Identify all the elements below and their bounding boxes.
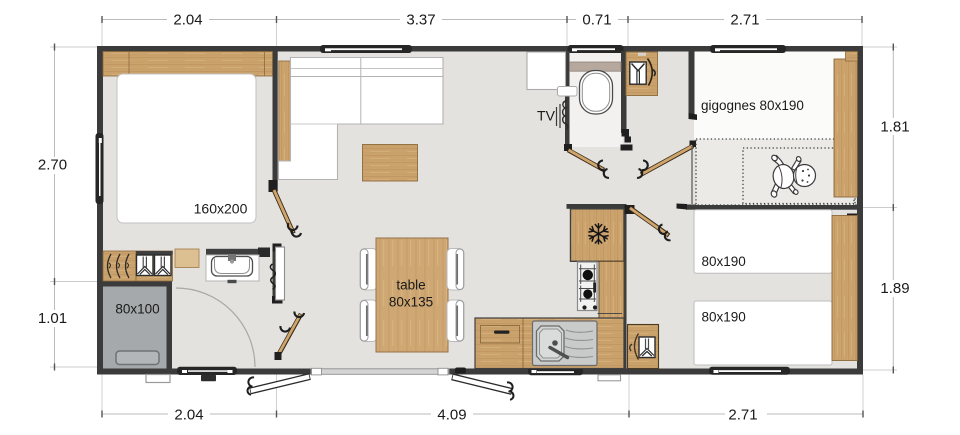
svg-text:2.04: 2.04 bbox=[173, 12, 202, 29]
svg-text:80x190: 80x190 bbox=[702, 254, 746, 269]
svg-text:4.09: 4.09 bbox=[437, 407, 466, 424]
svg-text:2.70: 2.70 bbox=[38, 157, 67, 174]
svg-text:gigognes 80x190: gigognes 80x190 bbox=[701, 98, 804, 113]
svg-text:1.01: 1.01 bbox=[38, 310, 67, 327]
svg-text:1.81: 1.81 bbox=[880, 119, 909, 136]
svg-text:80x190: 80x190 bbox=[702, 310, 746, 325]
svg-text:160x200: 160x200 bbox=[194, 201, 248, 217]
svg-text:0.71: 0.71 bbox=[582, 12, 611, 29]
svg-text:2.71: 2.71 bbox=[730, 12, 759, 29]
svg-text:3.37: 3.37 bbox=[406, 12, 435, 29]
svg-text:80x135: 80x135 bbox=[389, 295, 433, 310]
svg-text:2.04: 2.04 bbox=[174, 407, 203, 424]
svg-text:2.71: 2.71 bbox=[728, 407, 757, 424]
svg-text:TV: TV bbox=[537, 108, 556, 124]
svg-text:1.89: 1.89 bbox=[880, 280, 909, 297]
svg-text:table: table bbox=[396, 278, 425, 293]
svg-text:80x100: 80x100 bbox=[115, 302, 159, 317]
